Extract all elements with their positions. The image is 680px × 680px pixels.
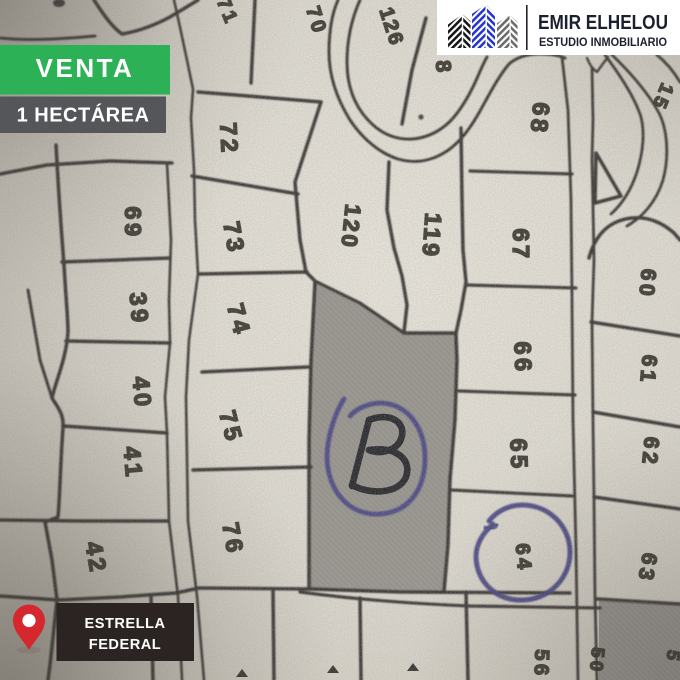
svg-text:ESTUDIO INMOBILIARIO: ESTUDIO INMOBILIARIO	[539, 37, 667, 49]
svg-text:FEDERAL: FEDERAL	[89, 637, 161, 653]
svg-text:EMIR ELHELOU: EMIR ELHELOU	[538, 12, 668, 34]
svg-text:VENTA: VENTA	[36, 53, 135, 83]
svg-text:ESTRELLA: ESTRELLA	[84, 616, 165, 632]
svg-text:1 HECTÁREA: 1 HECTÁREA	[17, 104, 150, 127]
